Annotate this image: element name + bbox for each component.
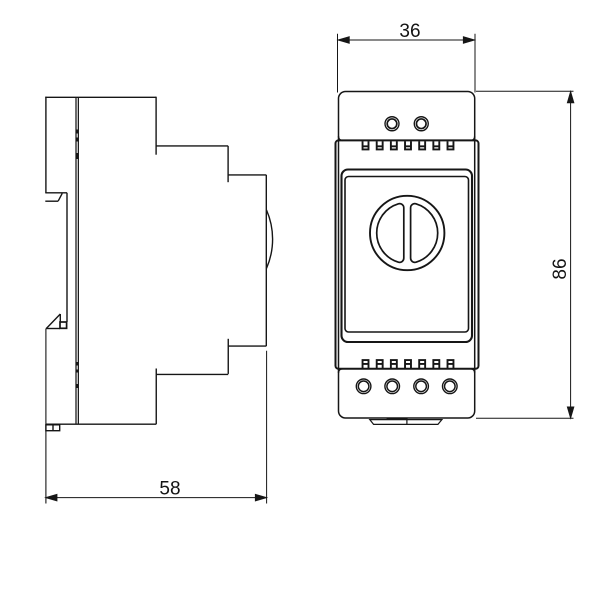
svg-text:36: 36: [399, 21, 420, 42]
svg-text:86: 86: [550, 258, 571, 279]
svg-text:58: 58: [159, 479, 180, 500]
